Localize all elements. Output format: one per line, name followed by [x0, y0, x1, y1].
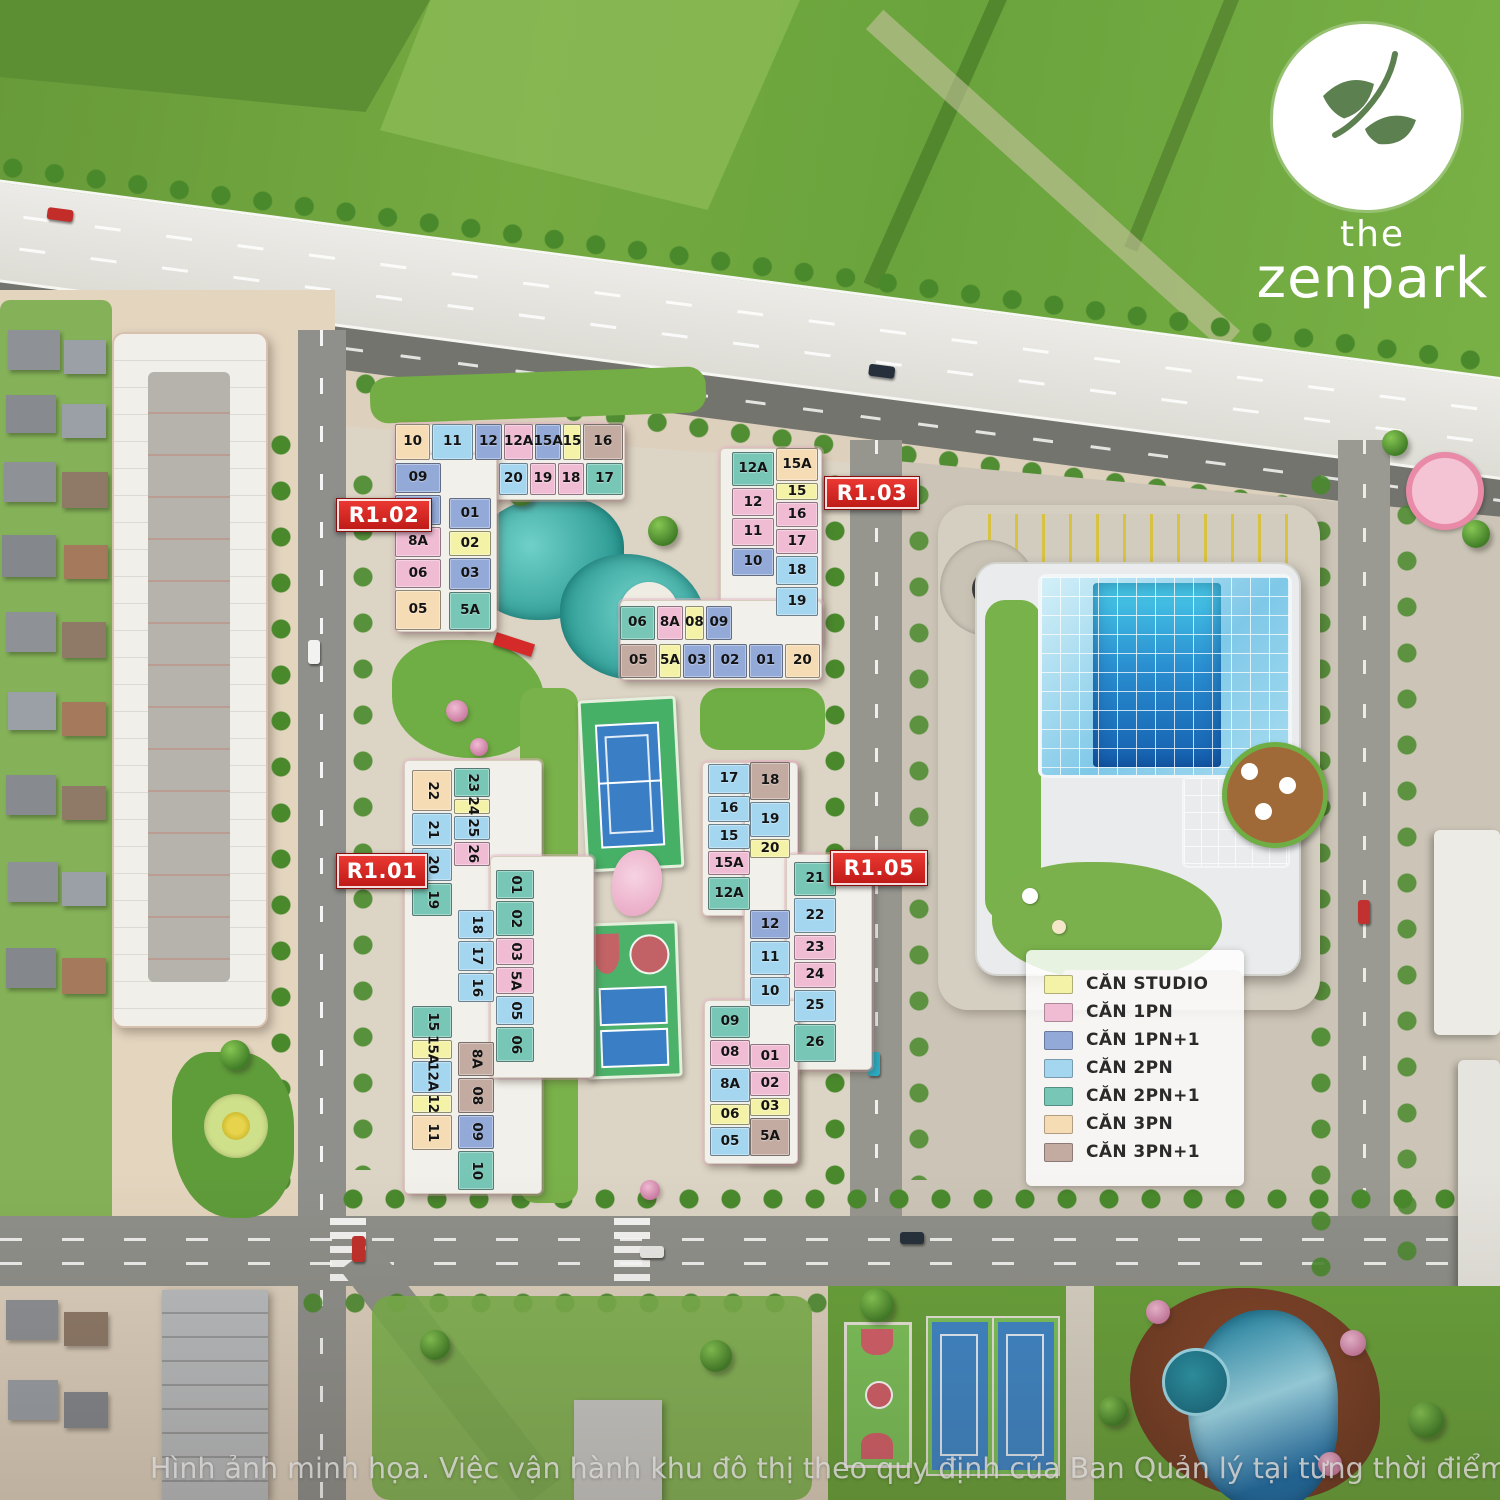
small-white-building	[574, 1400, 662, 1500]
unit-number: 05	[629, 654, 648, 668]
unit-number: 17	[469, 947, 483, 966]
unit-cell-03: 03	[449, 558, 491, 589]
umbrella	[1052, 920, 1066, 934]
legend-swatch-3pn1	[1044, 1143, 1073, 1162]
unit-cell-10: 10	[395, 424, 430, 460]
villa	[62, 472, 108, 508]
legend-row-studio: CĂN STUDIO	[1044, 974, 1226, 994]
unit-number: 16	[593, 435, 612, 449]
unit-cell-17: 17	[458, 941, 494, 970]
unit-cell-17: 17	[708, 764, 750, 794]
villa	[64, 340, 106, 374]
legend-swatch-2pn1	[1044, 1087, 1073, 1106]
unit-cell-10: 10	[750, 977, 790, 1006]
unit-cell-15: 15	[563, 424, 580, 460]
unit-number: 8A	[469, 1049, 483, 1069]
unit-cell-8A: 8A	[458, 1042, 494, 1076]
basketball-key	[593, 933, 620, 974]
building-r103: 12A121110 15A1516171819 068A0809 055A030…	[620, 448, 820, 678]
unit-cell-08: 08	[458, 1078, 494, 1112]
tree	[860, 1288, 894, 1322]
unit-number: 21	[806, 872, 825, 886]
multisport-court	[581, 920, 682, 1079]
unit-number: 25	[465, 818, 479, 837]
unit-cell-01: 01	[750, 1044, 790, 1069]
villa	[8, 862, 58, 902]
r105-units-mid-top: 181920	[750, 762, 790, 858]
unit-number: 8A	[408, 535, 428, 549]
unit-number: 02	[761, 1077, 780, 1091]
legend-label-2pn1: CĂN 2PN+1	[1086, 1086, 1200, 1106]
villa	[62, 622, 106, 658]
lane-dash	[0, 1262, 1500, 1265]
legend-label-1pn1: CĂN 1PN+1	[1086, 1030, 1200, 1050]
unit-cell-15: 15	[776, 483, 818, 501]
unit-number: 24	[465, 797, 479, 816]
legend-row-1pn: CĂN 1PN	[1044, 1002, 1226, 1022]
glass-grid	[1041, 577, 1289, 775]
blossom-tree	[640, 1180, 660, 1200]
center-circle	[865, 1381, 893, 1409]
legend-label-3pn1: CĂN 3PN+1	[1086, 1142, 1200, 1162]
r101-units-right-col: 0102035A0506	[496, 870, 534, 1062]
unit-cell-23: 23	[794, 935, 836, 960]
r101-units-col-a: 22212019	[412, 770, 452, 916]
unit-number: 18	[469, 915, 483, 934]
unit-number: 12	[479, 435, 498, 449]
unit-cell-15A: 15A	[535, 424, 561, 460]
villa	[2, 535, 56, 577]
legend-row-3pn: CĂN 3PN	[1044, 1114, 1226, 1134]
unit-number: 10	[403, 435, 422, 449]
unit-cell-15: 15	[708, 824, 750, 849]
unit-cell-20: 20	[750, 839, 790, 858]
tree	[220, 1040, 250, 1070]
unit-cell-16: 16	[708, 796, 750, 821]
unit-number: 16	[469, 978, 483, 997]
unit-cell-05: 05	[496, 996, 534, 1025]
basketball-court-south	[844, 1322, 912, 1468]
unit-number: 06	[409, 567, 428, 581]
r103-units-bottom-row: 055A03020120	[620, 644, 820, 678]
villa	[6, 612, 56, 652]
unit-cell-02: 02	[713, 644, 747, 678]
unit-number: 08	[721, 1046, 740, 1060]
edge-building	[1434, 830, 1500, 1035]
unit-cell-03: 03	[683, 644, 711, 678]
unit-cell-8A: 8A	[657, 606, 683, 640]
unit-cell-12: 12	[475, 424, 503, 460]
unit-number: 20	[504, 472, 523, 486]
r105-units-left-upper: 17161515A12A	[708, 764, 750, 910]
unit-number: 17	[595, 472, 614, 486]
unit-number: 8A	[720, 1078, 740, 1092]
villa	[62, 702, 106, 736]
unit-number: 12A	[714, 887, 743, 901]
unit-number: 5A	[660, 654, 680, 668]
car	[868, 364, 895, 379]
unit-number: 01	[761, 1050, 780, 1064]
car	[352, 1236, 365, 1262]
unit-cell-12: 12	[750, 910, 790, 939]
unit-cell-23: 23	[454, 768, 490, 797]
unit-number: 16	[720, 802, 739, 816]
unit-cell-12: 12	[412, 1095, 452, 1114]
unit-cell-15A: 15A	[708, 851, 750, 875]
unit-cell-01: 01	[496, 870, 534, 899]
unit-cell-12A: 12A	[732, 452, 774, 486]
unit-number: 16	[788, 508, 807, 522]
unit-cell-18: 18	[750, 762, 790, 800]
unit-number: 05	[409, 603, 428, 617]
r101-units-col-b: 1515A12A1211	[412, 1006, 452, 1150]
unit-cell-05: 05	[395, 590, 441, 630]
mini-court	[600, 1028, 669, 1068]
blossom-shrub	[1146, 1300, 1170, 1324]
unit-number: 12	[761, 918, 780, 932]
unit-cell-12: 12	[732, 488, 774, 516]
r102-units-second-row: 20191817	[499, 463, 623, 495]
unit-cell-02: 02	[750, 1071, 790, 1096]
unit-cell-17: 17	[586, 463, 623, 495]
unit-number: 15	[720, 830, 739, 844]
street-trees	[350, 470, 376, 1170]
pink-garden-circle	[1406, 452, 1484, 530]
blossom-shrub	[1340, 1330, 1366, 1356]
mini-court	[599, 986, 668, 1026]
unit-number: 18	[761, 774, 780, 788]
unit-cell-25: 25	[794, 990, 836, 1022]
unit-number: 15A	[534, 435, 563, 449]
unit-number: 22	[806, 909, 825, 923]
unit-number: 11	[425, 1123, 439, 1142]
unit-cell-19: 19	[750, 802, 790, 837]
unit-number: 17	[720, 772, 739, 786]
unit-cell-19: 19	[776, 587, 818, 616]
unit-type-legend: CĂN STUDIOCĂN 1PNCĂN 1PN+1CĂN 2PNCĂN 2PN…	[1026, 950, 1244, 1186]
lane-dash	[0, 1238, 1500, 1241]
unit-cell-06: 06	[620, 606, 655, 640]
edge-building	[1458, 1060, 1500, 1310]
unit-number: 15	[425, 1013, 439, 1032]
blossom-tree	[446, 700, 468, 722]
red-bridge	[493, 632, 535, 657]
unit-cell-11: 11	[412, 1115, 452, 1150]
unit-number: 10	[761, 985, 780, 999]
villa	[8, 1380, 58, 1420]
unit-cell-05: 05	[710, 1127, 750, 1156]
villa	[62, 872, 106, 906]
unit-cell-5A: 5A	[659, 644, 681, 678]
tennis-lines	[604, 734, 653, 834]
unit-number: 18	[562, 472, 581, 486]
round-deck	[1222, 742, 1328, 848]
label-r102: R1.02	[336, 498, 432, 532]
r105-units-mid-bottom: 0102035A	[750, 1044, 790, 1156]
unit-cell-12A: 12A	[504, 424, 533, 460]
r102-units-top-row: 10111212A15A1516	[395, 424, 623, 460]
unit-cell-12A: 12A	[412, 1061, 452, 1093]
r103-units-inner-col: 12A121110	[732, 452, 774, 576]
unit-number: 8A	[660, 616, 680, 630]
unit-cell-09: 09	[706, 606, 732, 640]
unit-cell-06: 06	[395, 559, 441, 589]
logo-word-zenpark: zenpark	[1255, 246, 1490, 311]
villa	[8, 692, 56, 730]
parking-rows	[988, 514, 1288, 566]
unit-number: 08	[469, 1086, 483, 1105]
unit-number: 21	[425, 820, 439, 839]
unit-cell-10: 10	[732, 548, 774, 576]
unit-cell-15A: 15A	[776, 448, 818, 481]
unit-number: 18	[788, 564, 807, 578]
legend-swatch-2pn	[1044, 1059, 1073, 1078]
unit-cell-11: 11	[432, 424, 472, 460]
unit-cell-22: 22	[794, 898, 836, 933]
tree	[1382, 430, 1408, 456]
unit-number: 19	[425, 890, 439, 909]
label-r105: R1.05	[830, 850, 928, 886]
unit-number: 01	[508, 875, 522, 894]
disclaimer-text: Hình ảnh minh họa. Việc vận hành khu đô …	[150, 1452, 1500, 1485]
label-r103: R1.03	[824, 476, 920, 510]
legend-label-1pn: CĂN 1PN	[1086, 1002, 1173, 1022]
r101-units-mid-a: 181716	[458, 910, 494, 1002]
unit-number: 20	[793, 654, 812, 668]
unit-number: 03	[508, 942, 522, 961]
unit-number: 12	[744, 496, 763, 510]
unit-number: 5A	[760, 1130, 780, 1144]
unit-cell-5A: 5A	[750, 1118, 790, 1156]
tree	[420, 1330, 450, 1360]
unit-cell-18: 18	[458, 910, 494, 939]
unit-number: 23	[465, 773, 479, 792]
tennis-lines	[940, 1334, 978, 1456]
villa	[62, 404, 106, 438]
villa	[62, 958, 106, 994]
unit-cell-5A: 5A	[496, 967, 534, 994]
unit-number: 5A	[508, 970, 522, 990]
unit-number: 06	[508, 1035, 522, 1054]
unit-number: 02	[508, 909, 522, 928]
tennis-lines	[1006, 1334, 1044, 1456]
unit-cell-8A: 8A	[710, 1068, 750, 1102]
car	[900, 1232, 924, 1244]
legend-label-studio: CĂN STUDIO	[1086, 974, 1208, 994]
unit-number: 05	[721, 1135, 740, 1149]
unit-cell-06: 06	[710, 1104, 750, 1125]
villa	[64, 1392, 108, 1428]
unit-number: 12A	[504, 435, 533, 449]
r105-units-mid-mid: 121110	[750, 910, 790, 1006]
unit-number: 22	[425, 781, 439, 800]
unit-number: 10	[469, 1161, 483, 1180]
site-plan: 10111212A15A1516 20191817 09088A0605 010…	[0, 0, 1500, 1500]
zenpark-logo: the zenpark	[1255, 14, 1490, 294]
unit-cell-15A: 15A	[412, 1040, 452, 1059]
unit-number: 09	[710, 616, 729, 630]
legend-label-3pn: CĂN 3PN	[1086, 1114, 1173, 1134]
villa	[6, 948, 56, 988]
unit-number: 15	[563, 435, 582, 449]
label-r101: R1.01	[336, 853, 428, 889]
unit-cell-24: 24	[794, 962, 836, 987]
legend-row-2pn: CĂN 2PN	[1044, 1058, 1226, 1078]
building-r105: 17161515A12A 181920 121110 0102035A 2122…	[698, 762, 870, 1162]
unit-number: 20	[761, 842, 780, 856]
unit-number: 01	[461, 507, 480, 521]
unit-cell-16: 16	[458, 973, 494, 1002]
unit-number: 19	[761, 813, 780, 827]
unit-cell-17: 17	[776, 529, 818, 554]
unit-number: 15	[788, 485, 807, 499]
unit-cell-08: 08	[710, 1040, 750, 1066]
villa	[64, 545, 108, 579]
tennis-court-central	[578, 696, 685, 873]
unit-cell-11: 11	[750, 941, 790, 975]
unit-number: 26	[465, 845, 479, 864]
unit-number: 06	[721, 1108, 740, 1122]
unit-number: 06	[628, 616, 647, 630]
tennis-court-south	[994, 1318, 1058, 1474]
unit-number: 23	[806, 941, 825, 955]
legend-row-2pn1: CĂN 2PN+1	[1044, 1086, 1226, 1106]
east-garden-strip	[700, 688, 825, 750]
tennis-court-south	[928, 1318, 992, 1474]
unit-cell-18: 18	[558, 463, 584, 495]
unit-cell-15: 15	[412, 1006, 452, 1038]
unit-number: 26	[806, 1036, 825, 1050]
unit-cell-5A: 5A	[449, 592, 491, 630]
tree	[1098, 1396, 1128, 1426]
r102-units-left-col: 09088A0605	[395, 463, 441, 630]
unit-cell-03: 03	[750, 1098, 790, 1115]
villa	[62, 786, 106, 820]
unit-number: 12	[425, 1094, 439, 1113]
r101-units-mid-b: 8A080910	[458, 1042, 494, 1190]
villa	[4, 462, 56, 502]
unit-cell-09: 09	[395, 463, 441, 493]
unit-number: 03	[461, 567, 480, 581]
unit-cell-01: 01	[749, 644, 783, 678]
legend-label-2pn: CĂN 2PN	[1086, 1058, 1173, 1078]
unit-number: 05	[508, 1001, 522, 1020]
legend-swatch-3pn	[1044, 1115, 1073, 1134]
tree	[700, 1340, 732, 1372]
legend-swatch-1pn1	[1044, 1031, 1073, 1050]
unit-number: 02	[461, 537, 480, 551]
umbrella	[1241, 763, 1258, 780]
villa	[6, 1300, 58, 1340]
unit-cell-09: 09	[710, 1006, 750, 1038]
unit-cell-12A: 12A	[708, 877, 750, 910]
unit-cell-21: 21	[412, 813, 452, 846]
unit-cell-22: 22	[412, 770, 452, 811]
r105-units-left-lower: 09088A0605	[710, 1006, 750, 1156]
unit-number: 24	[806, 968, 825, 982]
villa-gardens	[0, 300, 112, 1230]
legend-swatch-studio	[1044, 975, 1073, 994]
unit-number: 25	[806, 999, 825, 1013]
unit-number: 17	[788, 535, 807, 549]
unit-cell-24: 24	[454, 799, 490, 814]
legend-row-3pn1: CĂN 3PN+1	[1044, 1142, 1226, 1162]
r103-units-outer-col: 15A1516171819	[776, 448, 818, 616]
unit-number: 15A	[425, 1035, 439, 1064]
unit-cell-02: 02	[449, 531, 491, 556]
unit-number: 03	[688, 654, 707, 668]
unit-cell-06: 06	[496, 1027, 534, 1062]
legend-row-1pn1: CĂN 1PN+1	[1044, 1030, 1226, 1050]
building-r101: 22212019 23242526 181716 0102035A0506 15…	[402, 760, 592, 1192]
unit-cell-26: 26	[454, 842, 490, 866]
umbrella	[1279, 777, 1296, 794]
unit-number: 11	[761, 951, 780, 965]
villa	[8, 330, 60, 370]
unit-number: 15A	[714, 857, 743, 871]
r103-units-top-row: 068A0809	[620, 606, 732, 640]
unit-number: 5A	[460, 604, 480, 618]
villa	[6, 775, 56, 815]
villa	[6, 395, 56, 433]
r101-units-col-2: 23242526	[454, 768, 490, 866]
shophouse-courtyard	[148, 372, 230, 982]
unit-cell-25: 25	[454, 816, 490, 840]
unit-cell-26: 26	[794, 1024, 836, 1062]
unit-cell-20: 20	[785, 644, 820, 678]
unit-cell-10: 10	[458, 1151, 494, 1190]
unit-number: 09	[409, 471, 428, 485]
street-trees	[906, 480, 932, 1180]
leaf-sprout-icon	[1293, 42, 1443, 192]
unit-cell-05: 05	[620, 644, 657, 678]
unit-cell-16: 16	[776, 502, 818, 527]
road-horizontal-south	[0, 1216, 1500, 1286]
unit-number: 09	[469, 1122, 483, 1141]
tree	[1462, 520, 1490, 548]
car	[308, 640, 320, 664]
unit-number: 15A	[782, 458, 811, 472]
unit-number: 12A	[738, 462, 767, 476]
r102-units-inner-col: 0102035A	[449, 498, 491, 630]
r105-units-right-col: 212223242526	[794, 862, 836, 1062]
villa	[64, 1312, 108, 1346]
car	[640, 1246, 664, 1258]
umbrella	[1255, 803, 1272, 820]
unit-number: 12A	[425, 1062, 439, 1091]
unit-cell-18: 18	[776, 556, 818, 585]
unit-number: 03	[761, 1100, 780, 1114]
tree	[1408, 1402, 1444, 1438]
legend-swatch-1pn	[1044, 1003, 1073, 1022]
car	[1358, 900, 1370, 924]
umbrella	[1022, 888, 1038, 904]
basketball-circle	[629, 934, 670, 975]
unit-cell-03: 03	[496, 938, 534, 965]
blossom-tree	[470, 738, 488, 756]
unit-number: 11	[744, 525, 763, 539]
unit-number: 08	[685, 616, 704, 630]
unit-number: 19	[788, 595, 807, 609]
unit-number: 19	[534, 472, 553, 486]
unit-cell-16: 16	[583, 424, 623, 460]
unit-cell-20: 20	[499, 463, 528, 495]
unit-number: 10	[744, 555, 763, 569]
unit-cell-11: 11	[732, 518, 774, 546]
unit-number: 02	[721, 654, 740, 668]
unit-cell-19: 19	[530, 463, 556, 495]
unit-number: 01	[756, 654, 775, 668]
